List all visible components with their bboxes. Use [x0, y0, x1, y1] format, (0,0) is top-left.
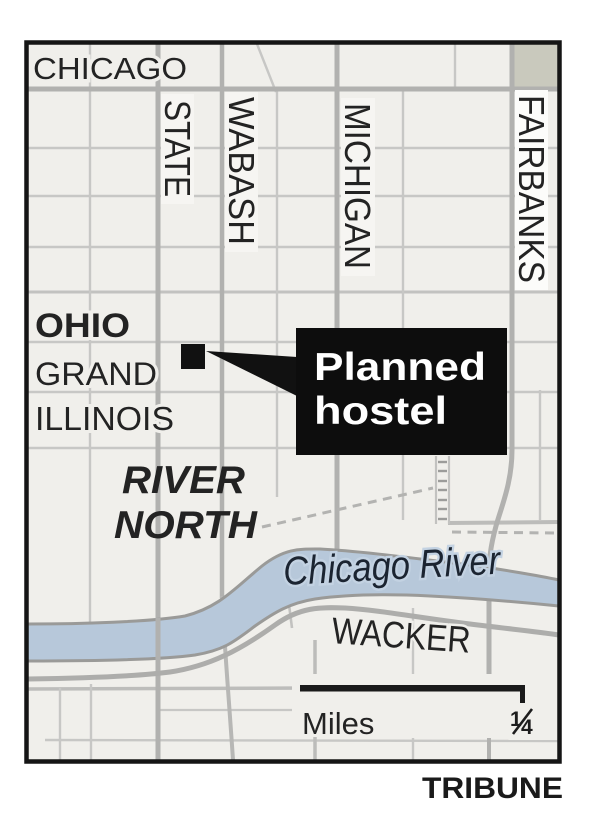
svg-text:GRAND: GRAND: [35, 356, 157, 392]
svg-text:Planned: Planned: [314, 346, 486, 389]
svg-text:Miles: Miles: [302, 706, 374, 741]
svg-text:CHICAGO: CHICAGO: [33, 51, 187, 86]
svg-text:NORTH: NORTH: [114, 504, 258, 547]
svg-text:4: 4: [521, 716, 533, 739]
svg-text:ILLINOIS: ILLINOIS: [35, 400, 174, 437]
svg-text:FAIRBANKS: FAIRBANKS: [511, 95, 552, 283]
svg-text:hostel: hostel: [314, 390, 447, 433]
svg-text:WABASH: WABASH: [221, 97, 262, 245]
svg-text:OHIO: OHIO: [35, 307, 130, 345]
svg-text:RIVER: RIVER: [122, 459, 245, 502]
svg-text:MICHIGAN: MICHIGAN: [337, 103, 378, 269]
svg-text:STATE: STATE: [157, 100, 198, 197]
svg-text:TRIBUNE: TRIBUNE: [422, 772, 563, 805]
